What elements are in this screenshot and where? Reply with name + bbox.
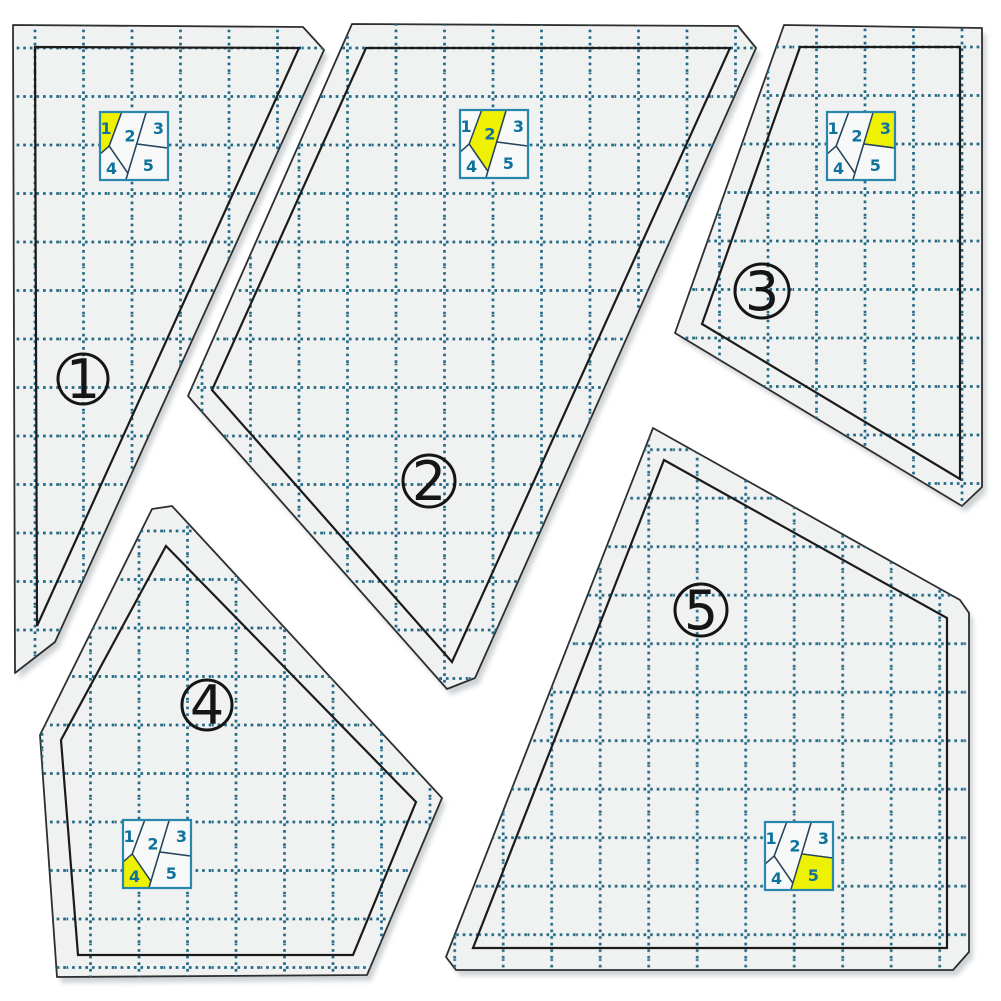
- template-1-number: 1: [66, 348, 100, 411]
- block-piece-4-label: 4: [833, 159, 844, 178]
- block-piece-5-label: 5: [143, 156, 154, 175]
- template-1-block-diagram: 12345: [100, 112, 168, 180]
- template-3-number: 3: [745, 260, 779, 323]
- block-piece-5-label: 5: [808, 866, 819, 885]
- template-5-number: 5: [684, 579, 718, 642]
- block-piece-3-label: 3: [818, 829, 829, 848]
- block-piece-1-label: 1: [461, 117, 472, 136]
- template-4-number: 4: [190, 674, 224, 737]
- template-4-block-diagram: 12345: [123, 820, 191, 888]
- block-piece-5-label: 5: [503, 154, 514, 173]
- quilt-template-set-photo: 112345212345312345412345512345: [0, 0, 1001, 1001]
- block-piece-5-label: 5: [870, 156, 881, 175]
- block-piece-4-label: 4: [466, 157, 477, 176]
- block-piece-1-label: 1: [828, 119, 839, 138]
- block-piece-2-label: 2: [147, 834, 158, 853]
- block-piece-4-label: 4: [771, 869, 782, 888]
- template-3-block-diagram: 12345: [827, 112, 895, 180]
- photo-canvas: 112345212345312345412345512345: [0, 0, 1001, 1001]
- block-piece-5-label: 5: [166, 864, 177, 883]
- block-piece-3-label: 3: [176, 827, 187, 846]
- block-piece-3-label: 3: [513, 117, 524, 136]
- block-piece-4-label: 4: [129, 867, 140, 886]
- block-piece-2-label: 2: [789, 836, 800, 855]
- block-piece-1-label: 1: [101, 119, 112, 138]
- block-piece-4-label: 4: [106, 159, 117, 178]
- block-piece-2-label: 2: [124, 126, 135, 145]
- block-piece-3-label: 3: [153, 119, 164, 138]
- block-piece-1-label: 1: [124, 827, 135, 846]
- block-piece-2-label: 2: [484, 124, 495, 143]
- template-2-number: 2: [412, 450, 446, 513]
- block-piece-1-label: 1: [766, 829, 777, 848]
- block-piece-3-label: 3: [880, 119, 891, 138]
- template-5-block-diagram: 12345: [765, 822, 833, 890]
- block-piece-2-label: 2: [851, 126, 862, 145]
- template-2-block-diagram: 12345: [460, 110, 528, 178]
